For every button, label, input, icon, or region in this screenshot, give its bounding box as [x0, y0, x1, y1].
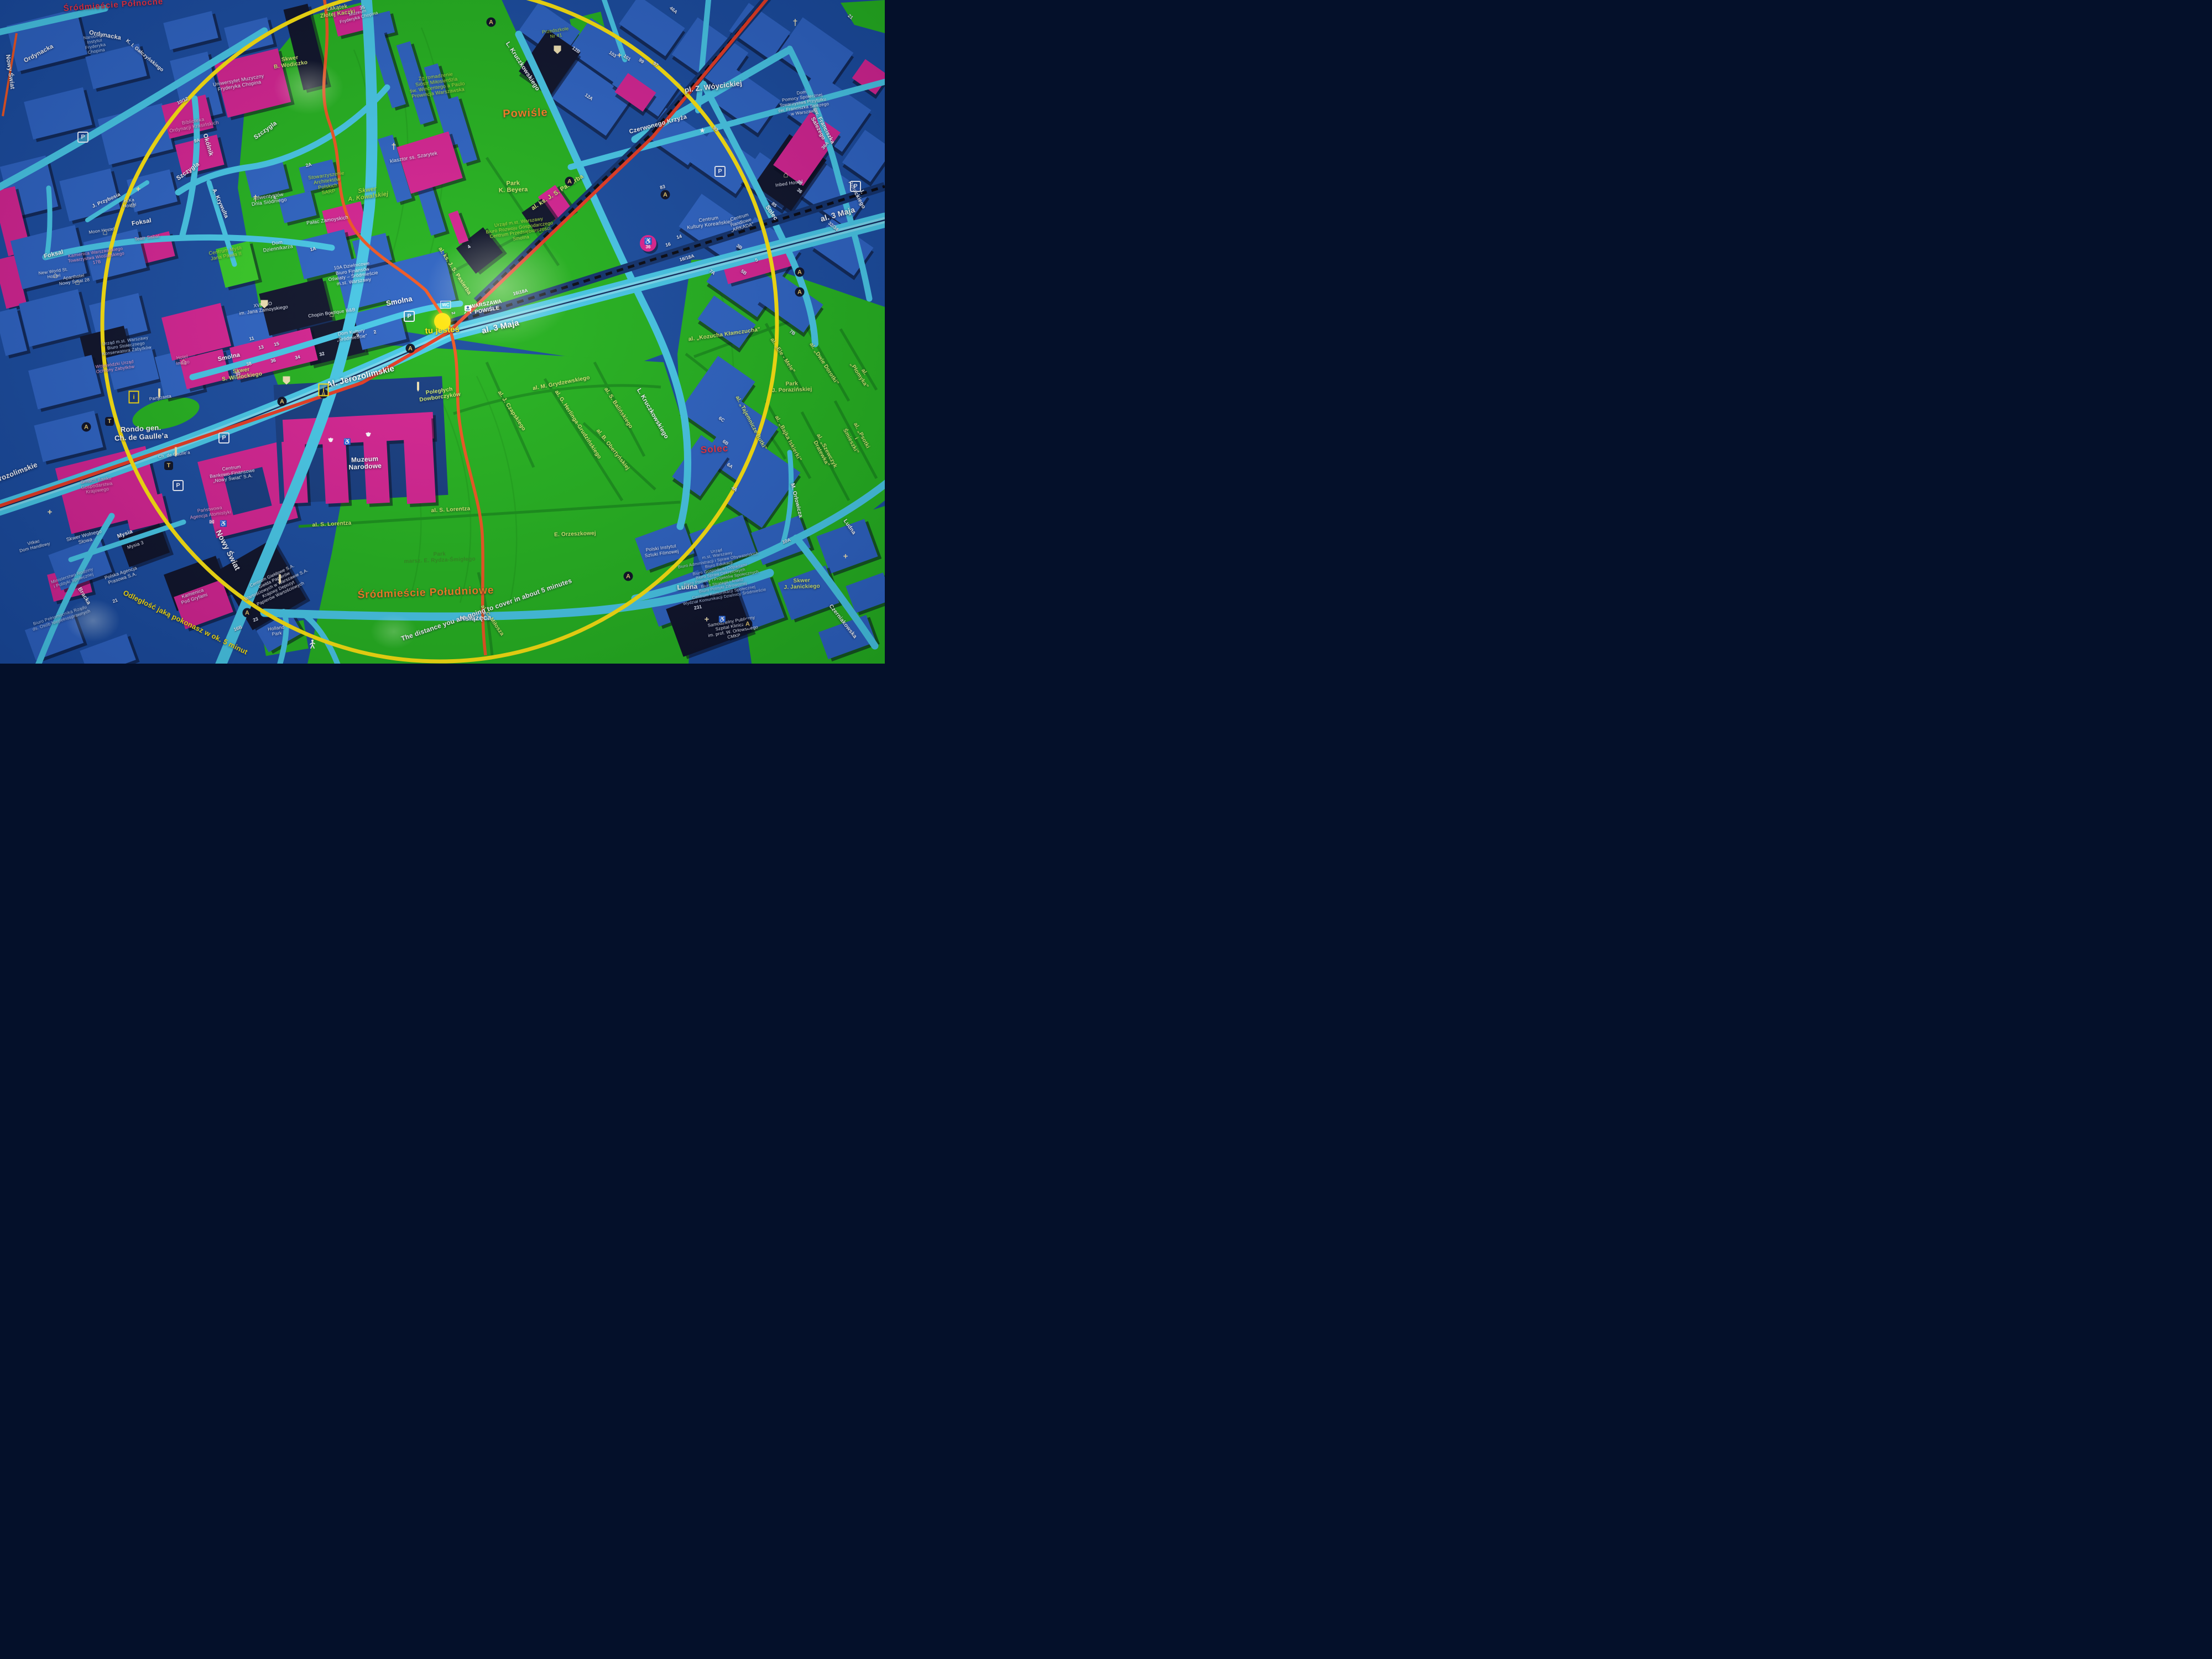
fountain-icon	[329, 439, 333, 442]
info-point-icon: i	[319, 384, 329, 397]
post-office-icon: ✉	[209, 519, 214, 526]
bus-stop-icon: A	[743, 619, 753, 629]
wheelchair-access-icon: ♿	[220, 520, 227, 528]
parking-icon: P	[173, 480, 184, 491]
bus-stop-icon: A	[406, 344, 415, 353]
hostel-house-icon: ⌂	[181, 357, 186, 367]
parking-icon: P	[714, 166, 726, 177]
tram-stop-icon: T	[105, 417, 114, 426]
wheelchair-access-icon: ♿	[718, 616, 726, 623]
warsaw-street-map-board: Śródmieście PółnocnePowiśleŚródmieście P…	[0, 0, 885, 664]
bus-stop-icon: A	[565, 177, 575, 186]
hospital-cross-icon: +	[843, 552, 848, 561]
wheelchair-access-icon: ♿	[343, 439, 351, 446]
bus-stop-icon: A	[624, 572, 633, 581]
church-cross-icon: †	[392, 142, 397, 152]
hostel-house-icon: ⌂	[329, 310, 334, 319]
bus-stop-icon: A	[243, 608, 252, 618]
info-point-icon: i	[129, 391, 139, 404]
bus-stop-icon: A	[487, 18, 496, 27]
hospital-cross-icon: +	[48, 508, 53, 517]
parking-icon: P	[850, 181, 861, 192]
parking-icon: P	[404, 311, 415, 322]
parking-icon: P	[77, 132, 88, 143]
hostel-house-icon: ⌂	[783, 170, 788, 180]
bus-stop-icon: A	[795, 288, 805, 297]
bus-stop-icon: A	[795, 268, 805, 277]
church-cross-icon: †	[253, 194, 258, 204]
map-icons-layer: AAAAAAAAAAAATTPPPPPPii★†††+++++✉♿♿♿⌂⌂⌂⌂⌂…	[0, 0, 885, 664]
hostel-house-icon: ⌂	[75, 278, 80, 287]
shield-icon	[261, 300, 268, 309]
hostel-house-icon: ⌂	[53, 271, 58, 280]
star-icon: ★	[700, 127, 705, 134]
you-are-here-dot	[434, 313, 451, 330]
hospital-cross-icon: +	[136, 185, 141, 194]
hospital-cross-icon: +	[705, 615, 709, 624]
monument-icon	[175, 447, 177, 456]
bus-stop-icon: A	[278, 397, 287, 406]
bus-stop-icon: A	[82, 422, 91, 432]
hostel-house-icon: ⌂	[130, 200, 135, 210]
shield-icon	[283, 377, 290, 385]
fountain-icon	[367, 433, 371, 437]
bus-stop-icon: A	[661, 190, 670, 200]
wheelchair-38-badge: ♿36	[640, 235, 656, 252]
hospital-cross-icon: +	[617, 51, 622, 60]
church-cross-icon: †	[793, 18, 798, 28]
shield-icon	[554, 46, 561, 54]
monument-icon	[158, 389, 160, 397]
monument-icon	[279, 575, 281, 583]
parking-icon: P	[218, 432, 229, 444]
monument-icon	[417, 382, 419, 390]
tram-stop-icon: T	[164, 461, 173, 470]
building-number: 36	[646, 245, 651, 249]
wc-icon: WC	[440, 301, 451, 309]
hostel-house-icon: ⌂	[102, 228, 107, 237]
